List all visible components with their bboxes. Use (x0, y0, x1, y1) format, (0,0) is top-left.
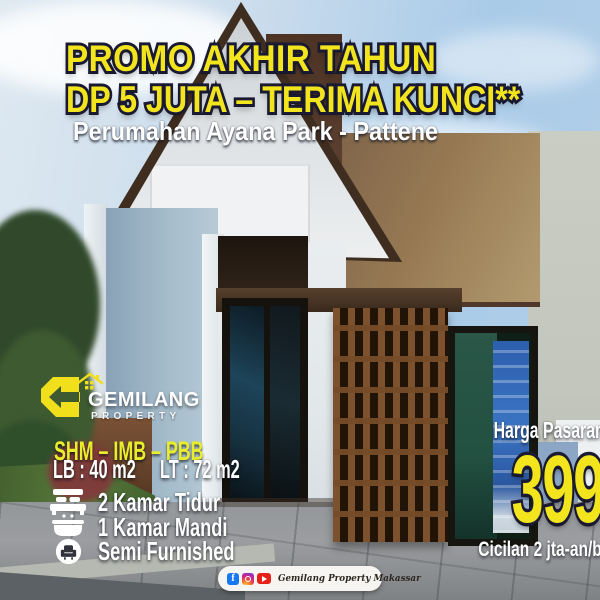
logo-tagline: PROPERTY (91, 411, 180, 422)
instagram-icon (242, 573, 254, 585)
feature-furnishing: Semi Furnished (46, 525, 98, 551)
feature-bedrooms: 2 Kamar Tidur (46, 476, 98, 502)
youtube-icon (257, 573, 271, 584)
facebook-icon: f (227, 573, 239, 585)
property-flyer: PROMO AKHIR TAHUN DP 5 JUTA – TERIMA KUN… (0, 0, 600, 600)
pricing-section: Harga Pasaran 500 jt-an ! 399 JT Cicilan… (320, 0, 582, 600)
logo-name: GEMILANG (88, 389, 200, 412)
gemilang-logo-icon (40, 376, 80, 418)
social-footer: f Gemilang Property Makassar (218, 566, 382, 591)
porch-shadow (218, 236, 308, 296)
feature-bathrooms: 1 Kamar Mandi (46, 501, 98, 527)
brand-name: Gemilang Property Makassar (278, 573, 421, 584)
door-glass (270, 306, 300, 498)
